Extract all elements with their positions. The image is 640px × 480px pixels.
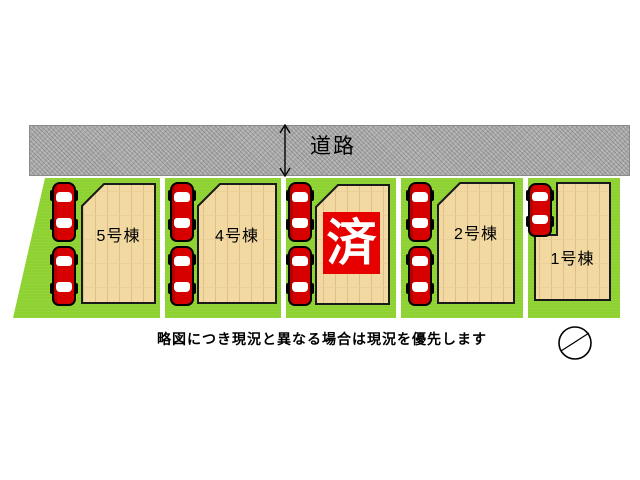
car-icon — [170, 246, 194, 306]
car-icon — [288, 182, 312, 242]
lot-1-label: 1号棟 — [535, 252, 610, 268]
lot-2-label: 2号棟 — [438, 227, 514, 243]
sold-badge: 済 — [323, 212, 380, 274]
north-arrow-icon — [556, 324, 594, 362]
lot-4-label: 4号棟 — [198, 229, 276, 245]
car-icon — [408, 246, 432, 306]
car-icon — [52, 182, 76, 242]
car-icon — [528, 183, 552, 237]
car-icon — [52, 246, 76, 306]
car-icon — [288, 246, 312, 306]
car-icon — [170, 182, 194, 242]
site-plan-canvas: 道路 5号棟 4号棟 済 2号棟 1号棟 — [0, 0, 640, 480]
lot-5-label: 5号棟 — [82, 229, 155, 245]
car-icon — [408, 182, 432, 242]
building-2-footprint — [438, 183, 514, 303]
disclaimer-text: 略図につき現況と異なる場合は現況を優先します — [150, 329, 494, 349]
